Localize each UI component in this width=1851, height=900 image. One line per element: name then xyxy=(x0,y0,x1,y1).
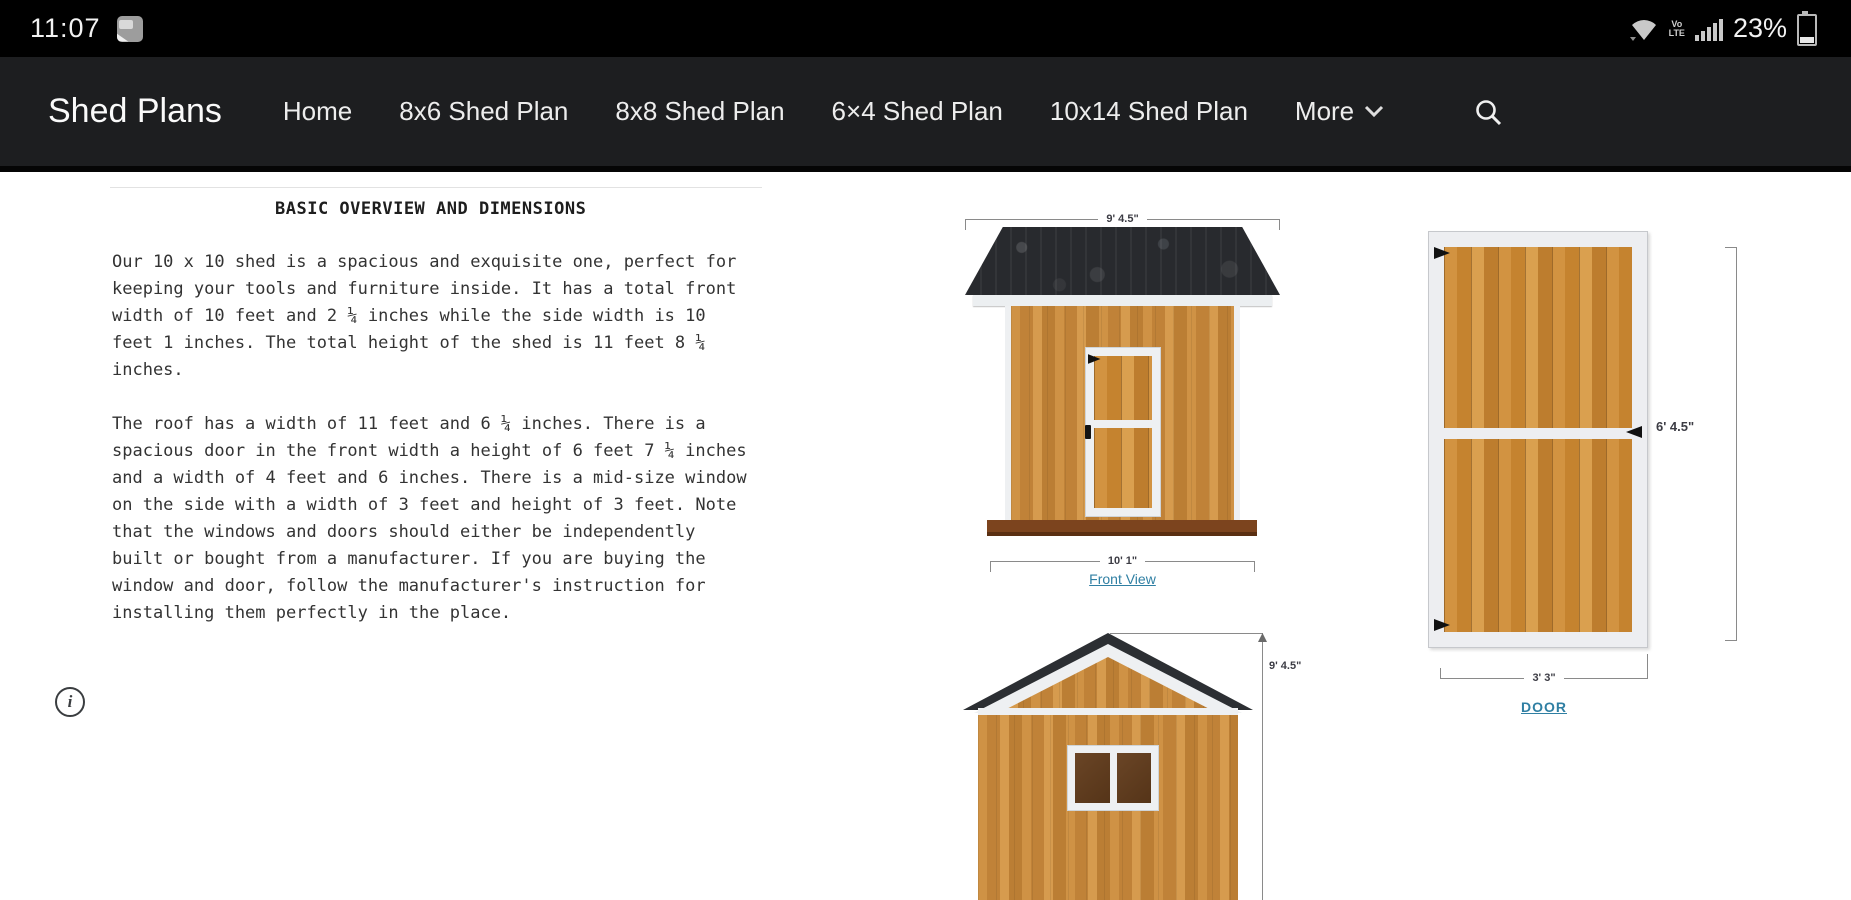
page: 11:07 Vo LTE 23% Shed Plans Home 8x6 She… xyxy=(0,0,1851,900)
search-icon xyxy=(1473,97,1503,127)
more-label: More xyxy=(1295,96,1354,127)
screenshot-notification-icon xyxy=(117,16,143,42)
status-bar: 11:07 Vo LTE 23% xyxy=(0,0,1851,57)
shed-roof xyxy=(965,227,1280,295)
door-planks xyxy=(1444,247,1632,632)
door-middle-rail xyxy=(1094,420,1152,428)
door-middle-rail xyxy=(1444,428,1632,439)
door-figure: 6' 4.5" 3' 3" DOOR xyxy=(1428,231,1758,731)
dimension-door-height-line xyxy=(1725,247,1737,641)
dimension-label: 10' 1" xyxy=(1100,555,1145,567)
door-handle xyxy=(1085,425,1091,439)
chevron-down-icon xyxy=(1364,105,1384,118)
battery-percent: 23% xyxy=(1733,13,1787,44)
side-view-figure: 9' 4.5" xyxy=(963,630,1313,900)
dimension-label: 3' 3" xyxy=(1524,672,1563,684)
clock: 11:07 xyxy=(30,13,101,44)
status-bar-left: 11:07 xyxy=(30,13,143,44)
dimension-top-width: 9' 4.5" xyxy=(965,213,1280,225)
nav-item-8x8-shed-plan[interactable]: 8x8 Shed Plan xyxy=(615,96,784,127)
status-bar-right: Vo LTE 23% xyxy=(1629,11,1817,46)
door-link[interactable]: DOOR xyxy=(1440,699,1648,715)
nav-bar: Shed Plans Home 8x6 Shed Plan 8x8 Shed P… xyxy=(0,57,1851,172)
dimension-bottom-width: 10' 1" xyxy=(990,555,1255,567)
paragraph-overview: Our 10 x 10 shed is a spacious and exqui… xyxy=(112,249,792,384)
nav-item-10x14-shed-plan[interactable]: 10x14 Shed Plan xyxy=(1050,96,1248,127)
nav-item-8x6-shed-plan[interactable]: 8x6 Shed Plan xyxy=(399,96,568,127)
volte-icon: Vo LTE xyxy=(1669,20,1685,38)
door-image xyxy=(1428,231,1648,648)
front-view-link[interactable]: Front View xyxy=(965,571,1280,587)
signal-strength-icon xyxy=(1695,17,1723,41)
dimension-arrow-icon xyxy=(1258,633,1267,642)
dimension-label: 9' 4.5" xyxy=(1269,660,1301,672)
search-button[interactable] xyxy=(1473,97,1503,127)
shed-side-wall xyxy=(978,708,1238,900)
shed-base-skid xyxy=(987,520,1257,536)
dimension-connector-line xyxy=(1110,633,1262,634)
nav-item-home[interactable]: Home xyxy=(283,96,352,127)
section-heading: BASIC OVERVIEW AND DIMENSIONS xyxy=(275,199,586,219)
nav-item-more[interactable]: More xyxy=(1295,96,1384,127)
dimension-height-line xyxy=(1262,633,1263,900)
shed-front-wall xyxy=(1005,306,1240,525)
door-panel xyxy=(1094,356,1152,508)
window-pane xyxy=(1075,753,1110,803)
window-pane xyxy=(1117,753,1152,803)
shed-fascia xyxy=(973,295,1272,306)
site-logo[interactable]: Shed Plans xyxy=(48,92,222,131)
shed-window xyxy=(1067,745,1159,811)
paragraph-roof-door: The roof has a width of 11 feet and 6 ¼ … xyxy=(112,411,792,627)
dimension-label: 9' 4.5" xyxy=(1098,213,1146,225)
volte-text-bottom: LTE xyxy=(1669,29,1685,38)
wifi-icon xyxy=(1629,16,1659,42)
nav-item-6x4-shed-plan[interactable]: 6×4 Shed Plan xyxy=(832,96,1003,127)
divider xyxy=(110,187,762,188)
shed-front-door xyxy=(1085,347,1161,517)
dimension-door-width: 3' 3" xyxy=(1440,672,1648,684)
info-icon[interactable]: i xyxy=(55,687,85,717)
front-view-figure: 9' 4.5" 10' 1" Front View xyxy=(965,205,1280,605)
battery-icon xyxy=(1797,14,1817,46)
dimension-label: 6' 4.5" xyxy=(1656,419,1694,434)
